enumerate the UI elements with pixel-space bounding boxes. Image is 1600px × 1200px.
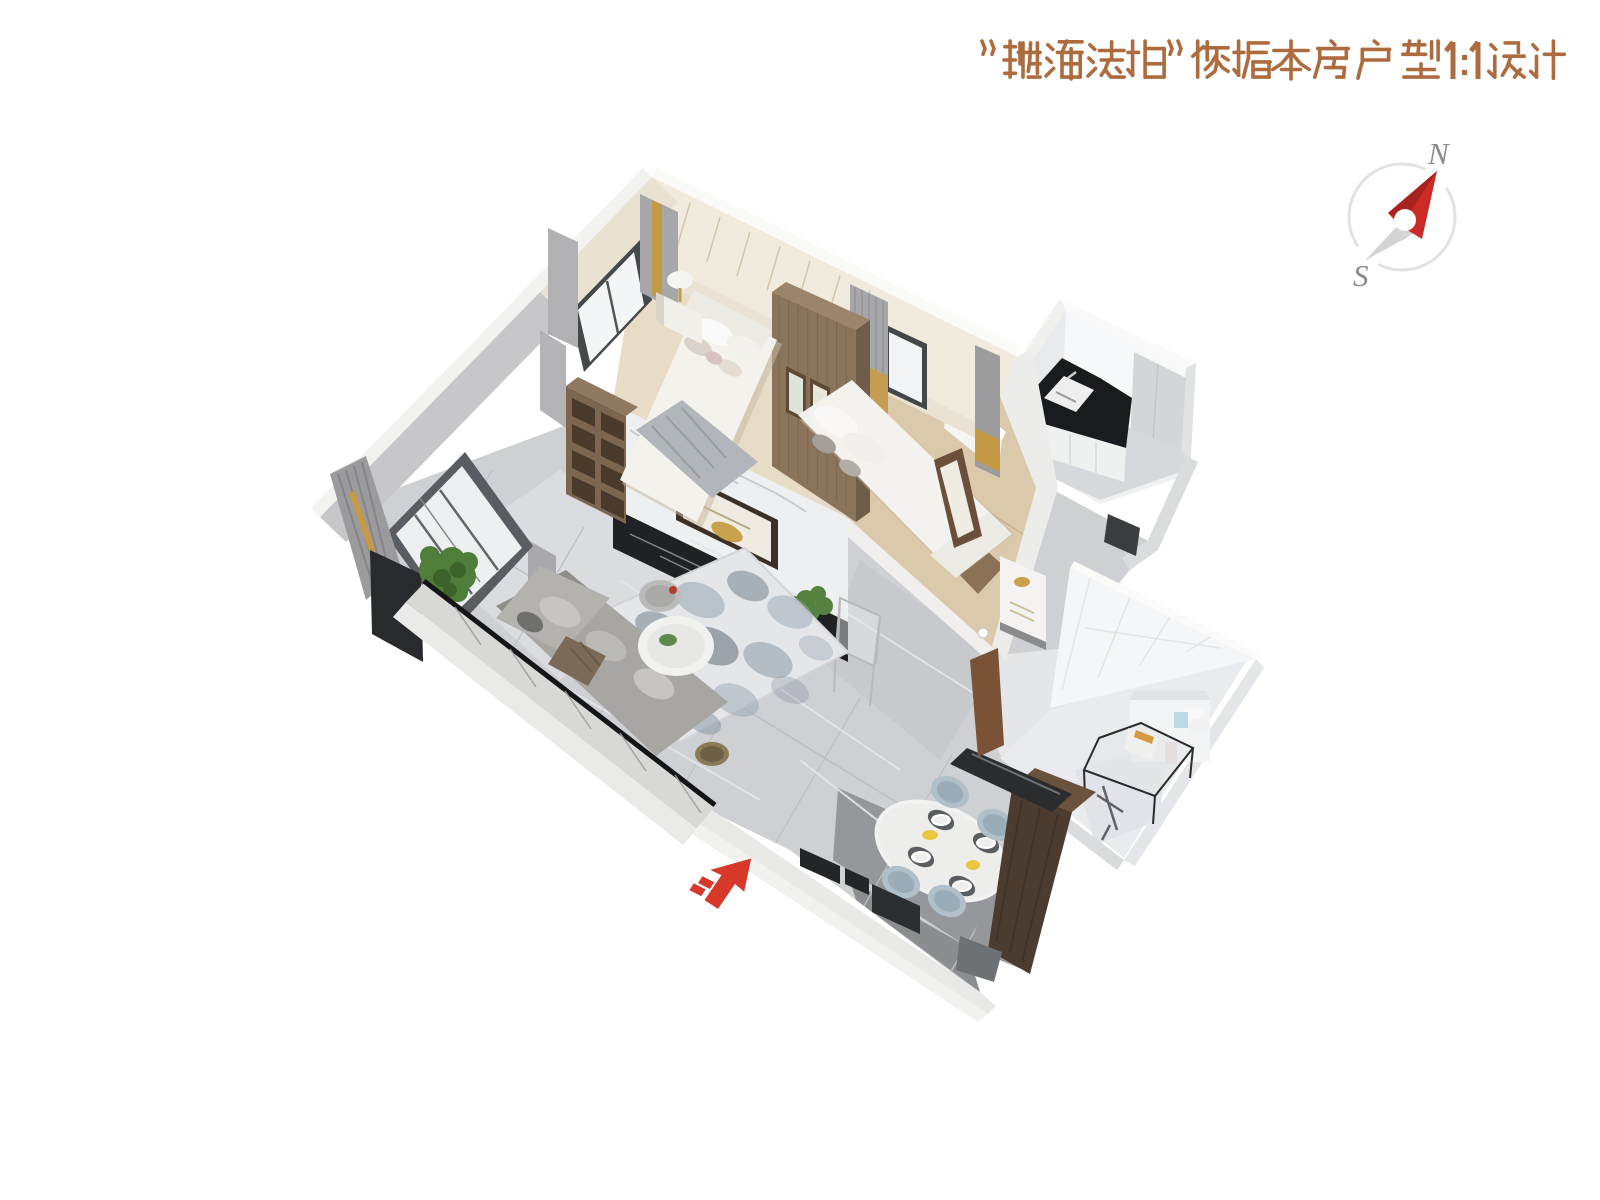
svg-text:N: N [1427, 136, 1451, 171]
svg-text:S: S [1353, 258, 1369, 293]
